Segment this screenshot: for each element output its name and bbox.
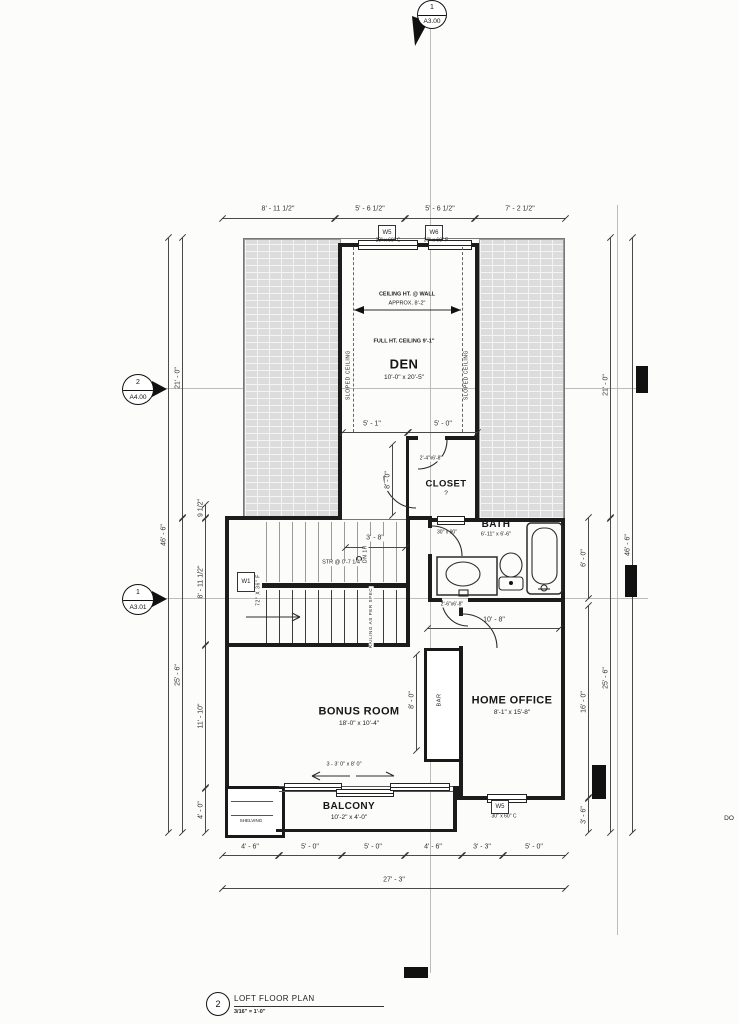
dim-line bbox=[588, 518, 589, 598]
room-size-office: 8'-1" x 15'-8" bbox=[494, 710, 530, 717]
den-wall-left bbox=[338, 243, 342, 520]
dim-line bbox=[342, 855, 405, 856]
sloped-ceiling-label-left: SLOPED CEILING bbox=[347, 350, 352, 400]
dim-line bbox=[475, 218, 566, 219]
title-underline bbox=[234, 1006, 384, 1007]
bath-window-size: 30" x 90" bbox=[437, 531, 457, 536]
sloped-ceiling-line-right bbox=[462, 247, 463, 432]
toilet-bowl bbox=[500, 553, 522, 577]
bar-counter bbox=[424, 648, 462, 762]
dim-line bbox=[588, 798, 589, 832]
room-name-balcony: BALCONY bbox=[323, 802, 375, 812]
bath-wall-left-b bbox=[428, 554, 432, 602]
room-name-bonus: BONUS ROOM bbox=[319, 707, 400, 718]
exterior-wall-right bbox=[561, 518, 565, 800]
stair-wall-right bbox=[406, 516, 410, 647]
closet-wall-top-a bbox=[406, 436, 418, 440]
closet-wall-top-b bbox=[445, 436, 478, 440]
window-tag-w1-stair: W1 bbox=[237, 572, 255, 592]
sink-faucet bbox=[459, 590, 468, 596]
section-marker-left-lower: 1 A3.01 bbox=[122, 584, 154, 615]
dim-label: 8' - 0" bbox=[409, 689, 416, 711]
window-size-w5-top: 30" x 60" C bbox=[376, 239, 401, 244]
toilet-flush-dot bbox=[509, 581, 513, 585]
dim-label: 9 1/2" bbox=[198, 499, 205, 517]
grid-line-vertical-2 bbox=[617, 205, 618, 935]
den-wall-right bbox=[475, 243, 479, 520]
stair-treads-upper bbox=[266, 522, 400, 582]
dim-label: 5' - 1" bbox=[363, 421, 381, 428]
detail-number-circle: 2 bbox=[206, 992, 230, 1016]
dim-line bbox=[503, 855, 566, 856]
dim-label: 25' - 6" bbox=[175, 664, 182, 686]
dim-label: 4' - 6" bbox=[424, 844, 442, 851]
room-name-bath: BATH bbox=[482, 520, 511, 530]
dim-line bbox=[610, 238, 611, 518]
stair-mid-rail bbox=[262, 583, 410, 588]
dim-label: 5' - 6 1/2" bbox=[355, 206, 385, 213]
dim-line bbox=[405, 218, 475, 219]
window-size-w1-stair: 72" X 36" F bbox=[257, 574, 262, 606]
dim-label: 4' - 0" bbox=[198, 801, 205, 819]
balcony-door-panel-3 bbox=[390, 783, 450, 791]
dim-line bbox=[408, 432, 478, 433]
edge-text: DO bbox=[724, 816, 734, 823]
room-size-bath: 6'-11" x 6'-6" bbox=[481, 532, 511, 538]
dim-label: 5' - 6 1/2" bbox=[425, 206, 455, 213]
dim-line bbox=[462, 855, 503, 856]
window-tag-w5-office: W5 bbox=[491, 800, 509, 814]
roof-hatch-left bbox=[244, 239, 341, 519]
sheet-marker-bar bbox=[404, 967, 428, 978]
drawing-scale: 3/16" = 1'-0" bbox=[234, 1009, 265, 1015]
shelf-line-1 bbox=[231, 801, 273, 802]
dim-label: 5' - 0" bbox=[301, 844, 319, 851]
shelf-line-2 bbox=[231, 815, 273, 816]
dim-label: 3' - 3" bbox=[473, 844, 491, 851]
closet-wall-left bbox=[406, 436, 409, 520]
dim-line bbox=[222, 218, 335, 219]
bath-window bbox=[437, 516, 465, 525]
bathtub-inner bbox=[532, 528, 557, 584]
dim-line bbox=[588, 606, 589, 798]
bath-wall-left-a bbox=[428, 518, 432, 528]
stair-treads-lower bbox=[266, 590, 400, 643]
section-marker-top: 1 A3.00 bbox=[417, 0, 447, 29]
tub-drain bbox=[541, 585, 547, 591]
dim-label: 25' - 6" bbox=[603, 667, 610, 689]
balcony-door-arrow-1 bbox=[312, 772, 350, 780]
dim-line bbox=[205, 788, 206, 832]
wall-section-mark-2 bbox=[625, 565, 637, 597]
window-size-w5-office: 30" x 60" C bbox=[492, 815, 517, 820]
office-wall-left-stub bbox=[459, 606, 463, 616]
dim-label: 4' - 6" bbox=[241, 844, 259, 851]
drawing-title: LOFT FLOOR PLAN bbox=[234, 994, 315, 1003]
sloped-ceiling-line-left bbox=[353, 247, 354, 432]
section-left-lower-number: 1 bbox=[123, 585, 153, 601]
dim-label: 8' - 11 1/2" bbox=[198, 566, 205, 599]
section-top-number: 1 bbox=[418, 1, 446, 16]
wall-section-mark-1 bbox=[636, 366, 648, 393]
top-wall-left bbox=[225, 516, 342, 520]
room-size-den: 10'-0" x 20'-5" bbox=[384, 375, 424, 382]
dim-line bbox=[405, 855, 462, 856]
down-one-riser-note: DN 1R bbox=[364, 543, 369, 565]
dim-line bbox=[342, 432, 408, 433]
stair-riser-note: STR @ 0'-7 1/4" bbox=[320, 560, 364, 566]
room-size-balcony: 10'-2" x 4'-0" bbox=[331, 815, 367, 822]
bath-wall-bottom-b bbox=[468, 598, 565, 602]
bar-label: BAR bbox=[437, 693, 443, 706]
dim-label: 7' - 2 1/2" bbox=[505, 206, 535, 213]
dim-line bbox=[427, 628, 560, 629]
sloped-ceiling-label-right: SLOPED CEILING bbox=[465, 350, 470, 400]
bath-door-size: 2'-6"x6'-8" bbox=[439, 603, 465, 608]
dim-line bbox=[279, 855, 342, 856]
window-size-w6-top: 30" x 60" F bbox=[424, 239, 448, 244]
section-left-upper-sheet: A4.00 bbox=[123, 391, 153, 406]
balcony-door-panel-1 bbox=[284, 783, 342, 791]
wall-section-mark-3 bbox=[592, 765, 606, 799]
dim-label: 3' - 6" bbox=[581, 806, 588, 824]
section-left-lower-sheet: A3.01 bbox=[123, 601, 153, 616]
stair-wall-bottom bbox=[225, 643, 410, 647]
dim-label: 6' - 0" bbox=[581, 549, 588, 567]
bathtub bbox=[527, 523, 562, 594]
dim-line bbox=[345, 547, 406, 548]
detail-number: 2 bbox=[207, 993, 229, 1015]
dim-line bbox=[392, 445, 393, 515]
closet-door-size: 2'-4"x6'-8" bbox=[418, 457, 444, 462]
sink bbox=[446, 562, 480, 586]
ceiling-note-line1: CEILING HT. @ WALL bbox=[379, 292, 435, 298]
dim-line bbox=[205, 518, 206, 645]
dim-line bbox=[610, 518, 611, 832]
dim-line bbox=[182, 238, 183, 518]
floor-plan-sheet: 1 A3.00 2 A4.00 1 A3.01 8' - 11 1/2" 5' … bbox=[0, 0, 739, 1024]
dim-line bbox=[416, 655, 417, 750]
full-height-ceiling-note: FULL HT. CEILING 9'-1" bbox=[374, 339, 435, 345]
dim-label: 46' - 6" bbox=[161, 524, 168, 546]
dim-line bbox=[182, 518, 183, 832]
room-tag-closet: ? bbox=[444, 491, 448, 498]
dim-label: 3' - 8" bbox=[364, 535, 386, 542]
room-name-den: DEN bbox=[390, 358, 419, 371]
section-marker-left-upper: 2 A4.00 bbox=[122, 374, 154, 405]
room-name-closet: CLOSET bbox=[426, 479, 467, 489]
dim-label: 5' - 0" bbox=[364, 844, 382, 851]
dim-label: 46' - 6" bbox=[625, 534, 632, 556]
dim-line bbox=[205, 645, 206, 788]
dim-label: 5' - 0" bbox=[525, 844, 543, 851]
dim-label: 21' - 0" bbox=[603, 374, 610, 396]
dim-label: 10' - 8" bbox=[483, 617, 505, 624]
dim-label: 5' - 0" bbox=[434, 421, 452, 428]
room-size-bonus: 18'-0" x 10'-4" bbox=[339, 721, 379, 728]
ceiling-note-line2: APPROX. 8'-2" bbox=[389, 301, 426, 307]
dim-line bbox=[222, 855, 279, 856]
dim-label: 16' - 0" bbox=[581, 691, 588, 713]
railing-note: RAILING AS PER SPEC bbox=[369, 586, 374, 650]
dim-label: 8' - 11 1/2" bbox=[262, 206, 295, 213]
dim-line bbox=[222, 888, 566, 889]
dim-label: 8' - 0" bbox=[385, 469, 392, 491]
dim-label: 27' - 3" bbox=[383, 877, 405, 884]
dim-line bbox=[168, 238, 169, 832]
dim-line bbox=[632, 238, 633, 832]
vanity bbox=[437, 557, 497, 595]
balcony-door-arrow-2 bbox=[356, 772, 394, 776]
dim-label: 11' - 10" bbox=[198, 703, 205, 728]
dim-label: 21' - 0" bbox=[175, 367, 182, 389]
balcony-wall-bottom bbox=[276, 829, 457, 832]
section-top-sheet: A3.00 bbox=[418, 16, 446, 30]
balcony-office-connector bbox=[453, 786, 459, 800]
section-left-upper-number: 2 bbox=[123, 375, 153, 391]
section-left-upper-triangle bbox=[152, 381, 167, 397]
shelving-label: SHELVING bbox=[240, 819, 262, 824]
dim-line bbox=[335, 218, 405, 219]
roof-hatch-right bbox=[479, 239, 564, 519]
section-left-lower-triangle bbox=[152, 591, 167, 607]
room-name-office: HOME OFFICE bbox=[472, 696, 553, 707]
balcony-door-panel-2 bbox=[336, 789, 394, 797]
balcony-doors-size: 3 - 3' 0" x 8' 0" bbox=[326, 762, 361, 768]
